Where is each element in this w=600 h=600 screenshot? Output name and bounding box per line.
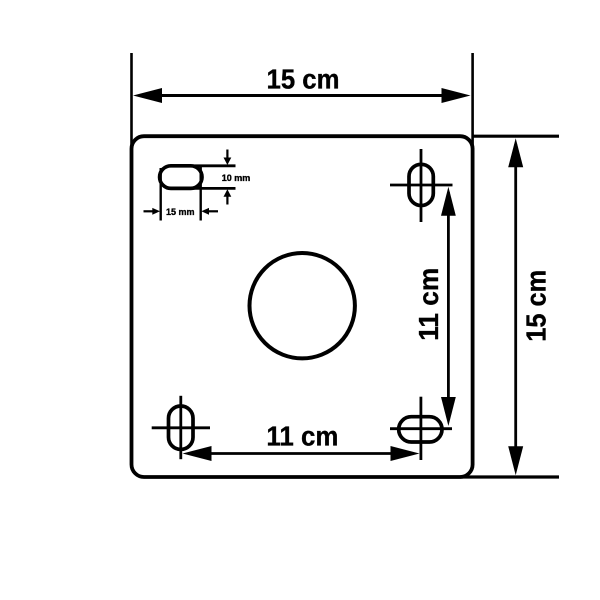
svg-text:15 cm: 15 cm [520, 270, 551, 342]
svg-text:11 cm: 11 cm [266, 420, 338, 451]
svg-text:15 cm: 15 cm [267, 64, 340, 95]
svg-text:15 mm: 15 mm [166, 207, 195, 217]
svg-text:11 cm: 11 cm [413, 268, 444, 341]
svg-text:10 mm: 10 mm [222, 173, 251, 183]
